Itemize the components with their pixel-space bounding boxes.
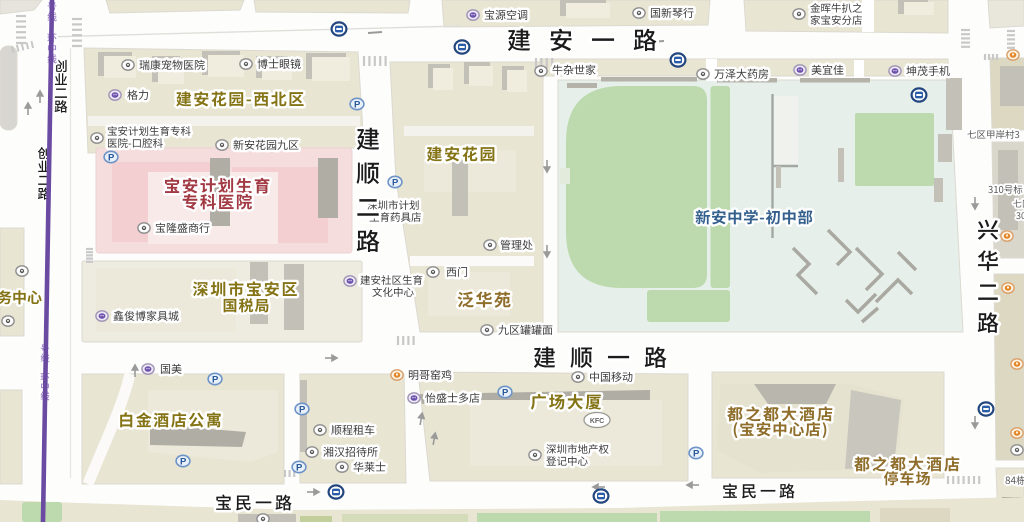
svg-text:P: P [180,456,187,467]
svg-text:P: P [212,374,219,385]
svg-text:P: P [299,404,306,415]
svg-text:P: P [392,177,399,188]
svg-text:P: P [693,448,700,459]
svg-text:P: P [108,152,115,163]
svg-text:P: P [354,99,361,110]
svg-text:P: P [502,387,509,398]
svg-text:P: P [296,462,303,473]
svg-text:KFC: KFC [590,418,604,425]
